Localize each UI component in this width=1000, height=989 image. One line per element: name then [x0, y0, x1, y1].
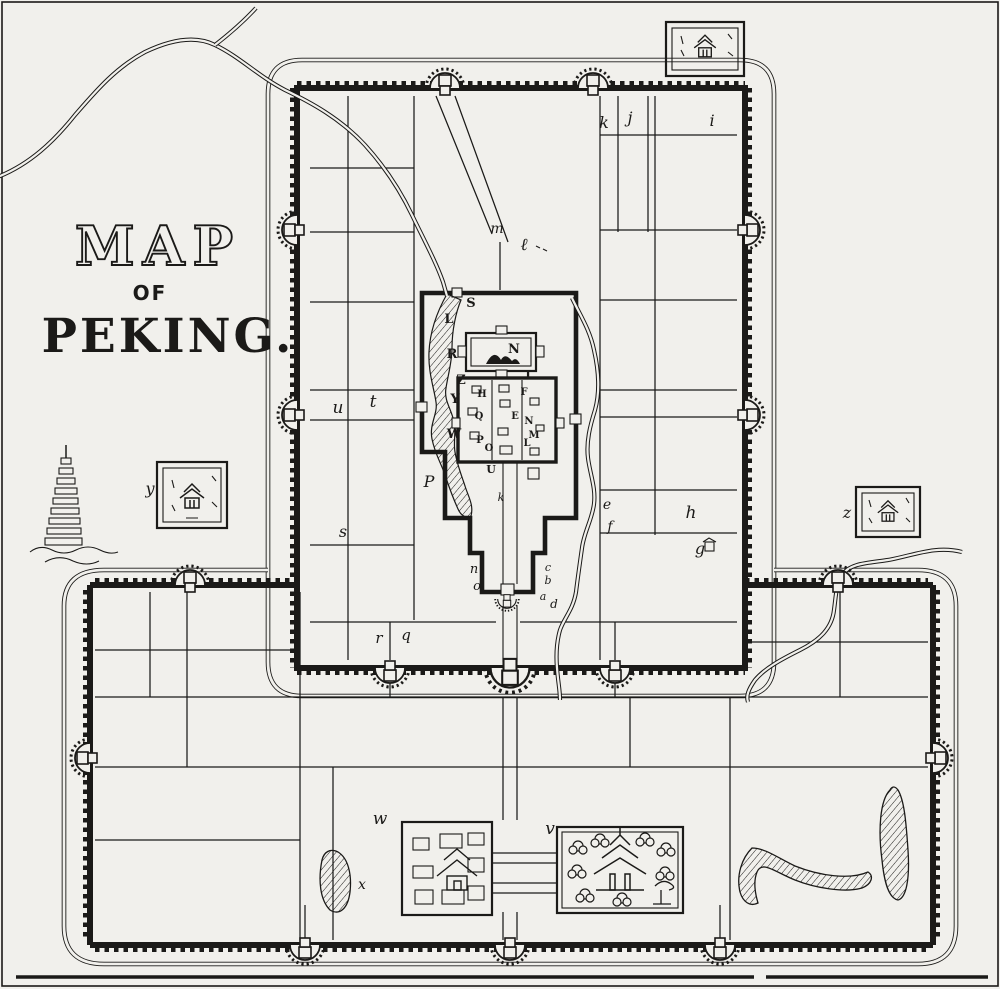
label-t: t — [370, 392, 377, 412]
label-h: h — [686, 503, 697, 523]
prospect-hill-enclosure — [458, 326, 544, 378]
temple-of-heaven-enclosure — [557, 827, 683, 913]
label-fc-N: N — [524, 416, 533, 427]
street-grid-chinese — [95, 592, 928, 940]
pond-oval — [880, 787, 908, 900]
label-I: I — [525, 368, 531, 382]
label-a: a — [540, 590, 547, 603]
label-s: s — [339, 522, 347, 541]
label-S: S — [466, 296, 475, 311]
label-i: i — [709, 111, 714, 130]
label-r: r — [375, 629, 383, 647]
title-peking: PEKING. — [42, 309, 295, 364]
label-fc-H: H — [477, 389, 486, 400]
label-j: j — [625, 108, 633, 127]
pagoda-west-icon — [30, 445, 118, 564]
pond-crescent — [739, 848, 872, 904]
label-W: W — [446, 427, 462, 442]
label-c: c — [545, 561, 551, 574]
label-v: v — [545, 819, 555, 839]
inset-temple-y — [157, 462, 227, 528]
label-y: y — [144, 479, 155, 498]
label-q: q — [401, 626, 411, 644]
label-m: m — [490, 221, 503, 237]
label-Y: Y — [449, 392, 460, 407]
city-gates — [71, 69, 952, 964]
map-title: MAP OF PEKING. — [42, 214, 295, 364]
label-e: e — [603, 497, 611, 513]
peking-map-svg: MAP OF PEKING. k j i m ℓ u t s P e f h g… — [0, 0, 1000, 989]
label-fc-P: P — [476, 435, 484, 446]
label-k-small: k — [498, 491, 505, 504]
label-fc-E: E — [511, 411, 519, 422]
label-k: k — [599, 113, 609, 132]
label-d: d — [550, 597, 558, 611]
pond-x — [320, 850, 350, 912]
tick-marks — [536, 246, 547, 251]
label-p-imperial: P — [423, 472, 435, 491]
forbidden-city — [452, 378, 564, 462]
inset-temple-z — [856, 487, 920, 537]
chinese-city-wall — [85, 580, 938, 950]
inset-top-right — [666, 22, 744, 76]
label-l-script: ℓ — [520, 235, 527, 255]
label-b: b — [544, 574, 551, 587]
label-Z: Z — [456, 373, 466, 388]
label-L: L — [444, 312, 453, 327]
label-w: w — [373, 809, 388, 829]
label-fc-Q: Q — [475, 411, 484, 422]
small-tree-icon — [653, 881, 674, 904]
label-fc-O: O — [485, 443, 494, 454]
map-of-peking-engraving: MAP OF PEKING. k j i m ℓ u t s P e f h g… — [0, 0, 1000, 989]
label-fc-F: F — [520, 387, 527, 398]
label-fc-L: L — [523, 438, 530, 449]
label-u: u — [333, 398, 344, 418]
label-z: z — [842, 503, 852, 522]
label-o: o — [473, 579, 481, 594]
label-N-hill: N — [508, 342, 520, 357]
title-of: OF — [133, 281, 168, 305]
label-x: x — [358, 877, 366, 893]
temple-of-agriculture-enclosure — [402, 822, 492, 915]
title-map: MAP — [75, 214, 241, 278]
label-R: R — [447, 347, 458, 362]
label-U: U — [486, 463, 496, 476]
label-n: n — [470, 562, 478, 577]
label-g: g — [695, 539, 705, 558]
